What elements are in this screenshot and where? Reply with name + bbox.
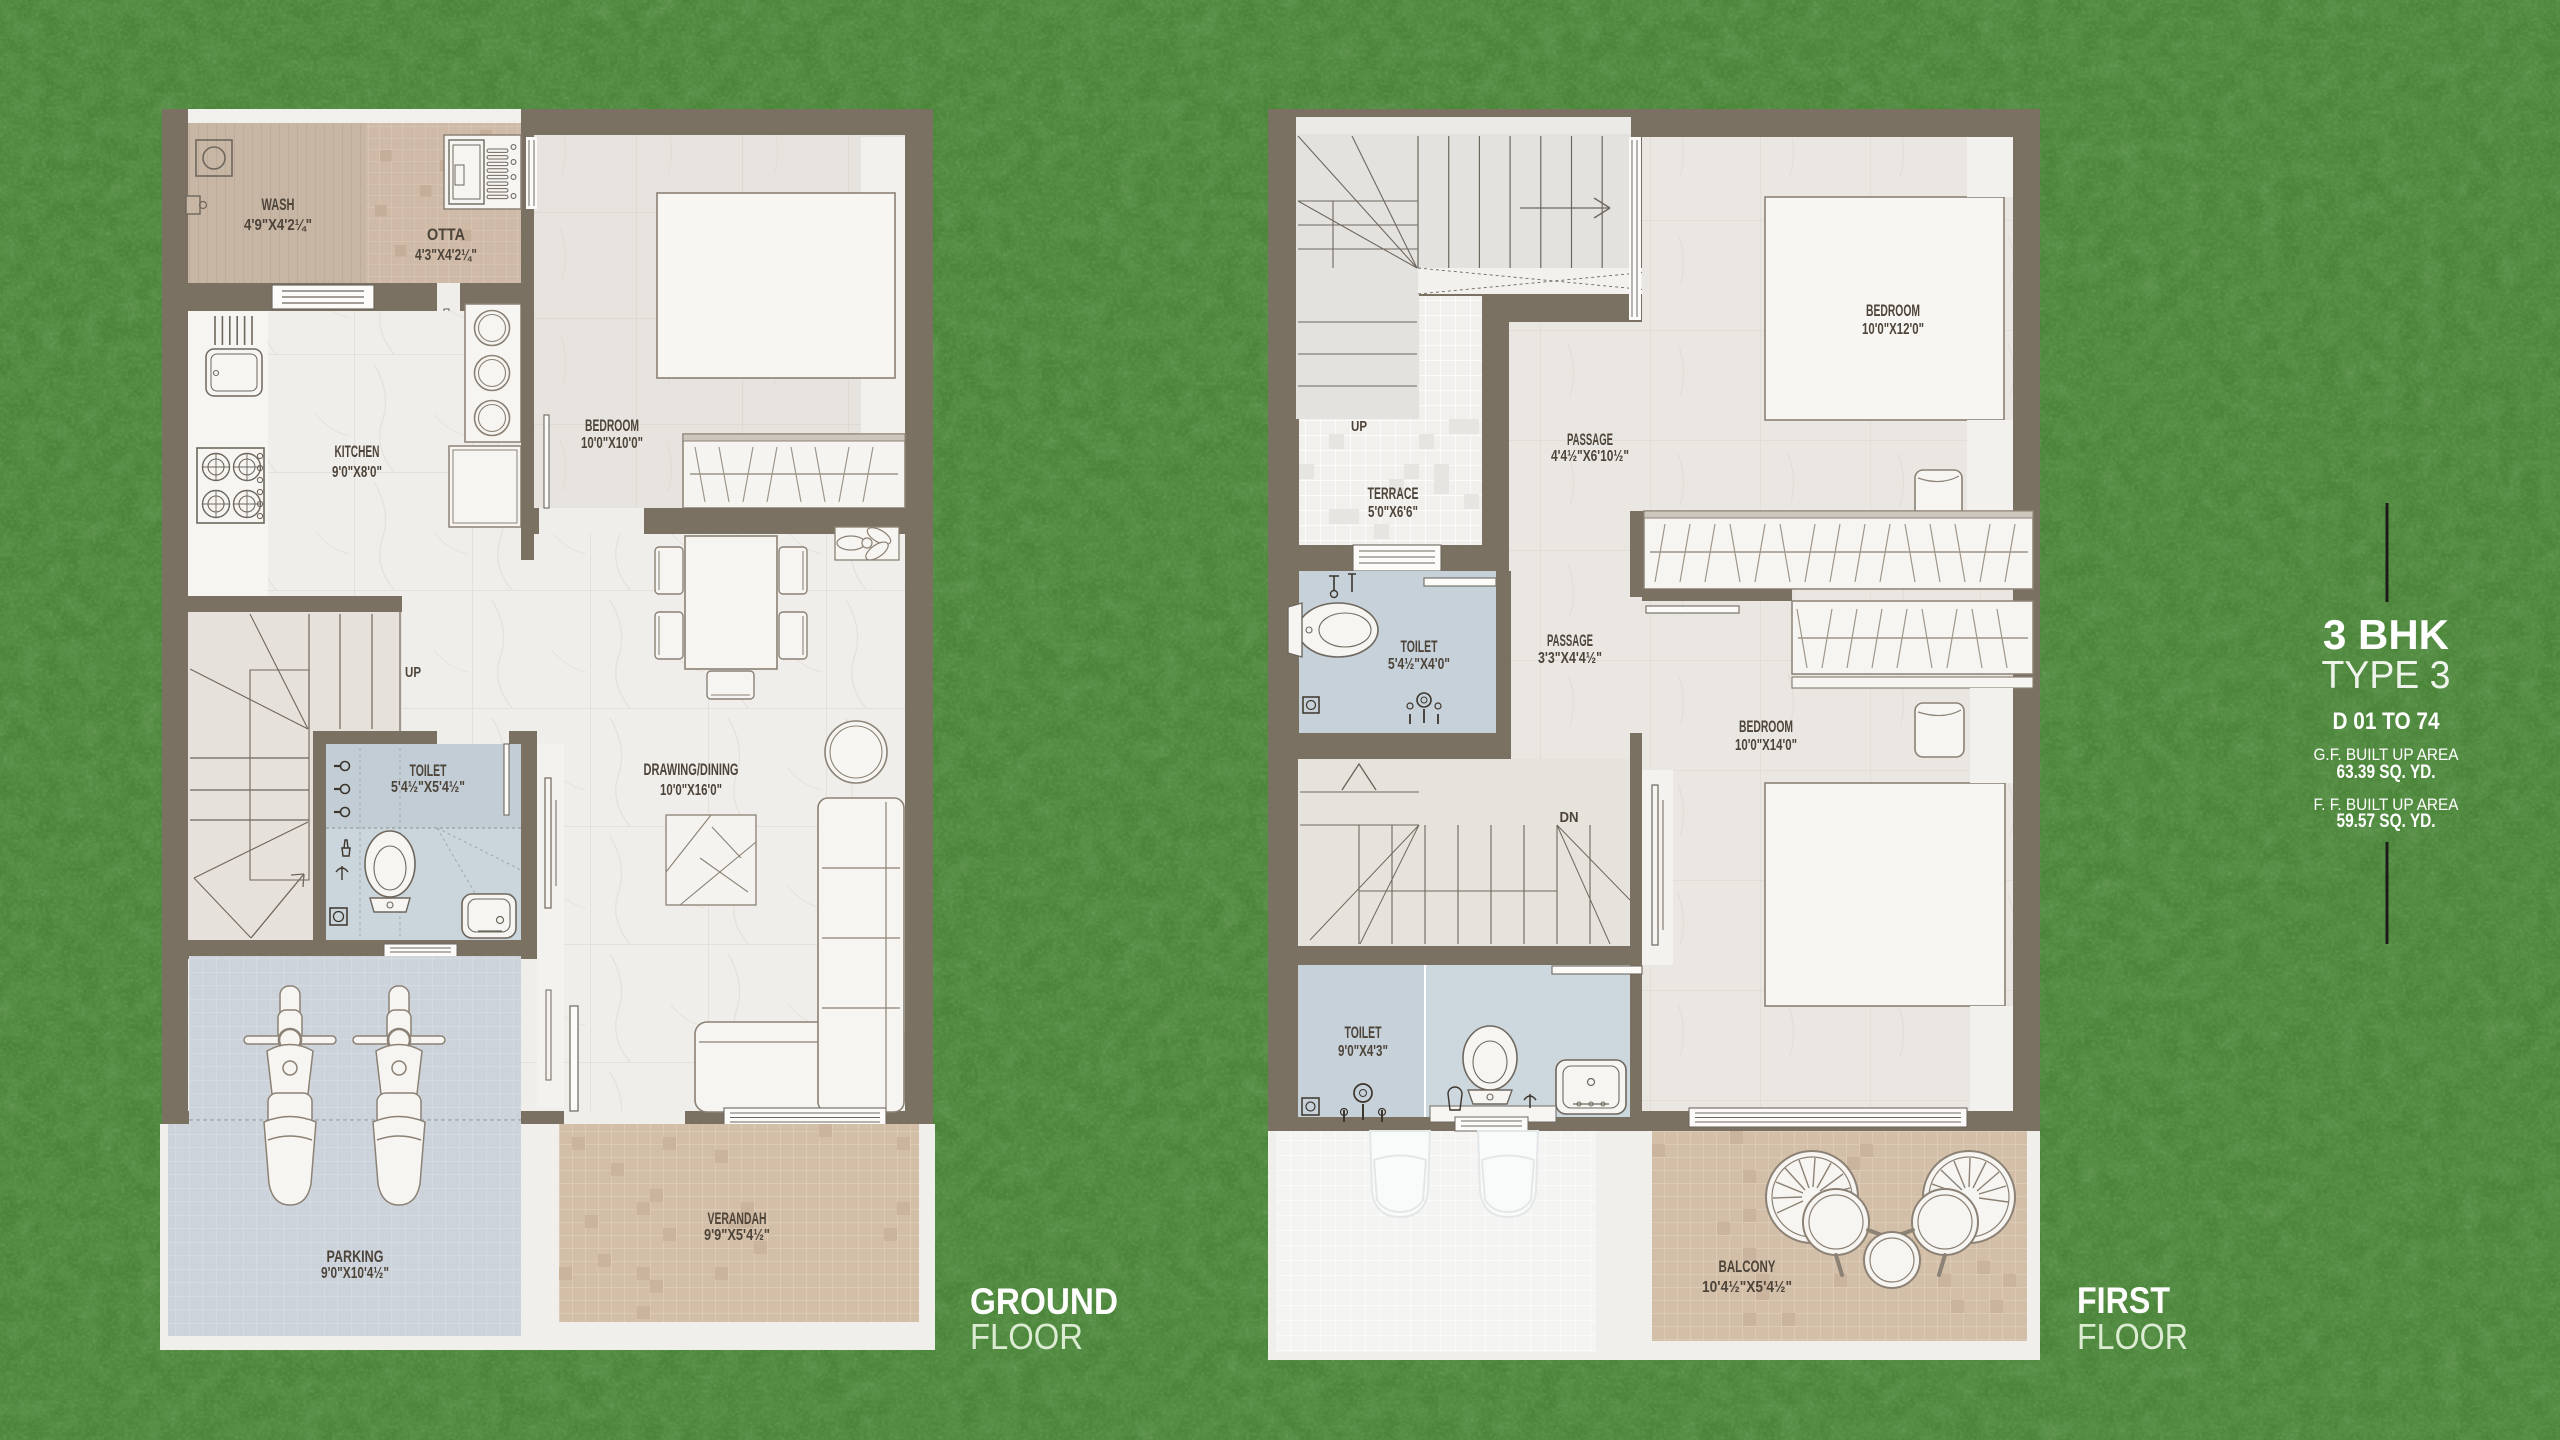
svg-text:FLOOR: FLOOR	[970, 1316, 1083, 1357]
svg-text:TOILET: TOILET	[1401, 638, 1438, 656]
svg-text:TYPE 3: TYPE 3	[2322, 654, 2451, 697]
svg-text:OTTA: OTTA	[427, 226, 465, 244]
svg-text:TOILET: TOILET	[410, 762, 447, 780]
svg-text:DN: DN	[1560, 809, 1579, 826]
svg-text:59.57 SQ. YD.: 59.57 SQ. YD.	[2337, 811, 2436, 832]
svg-text:5'0"X6'6": 5'0"X6'6"	[1368, 504, 1418, 521]
svg-text:BEDROOM: BEDROOM	[585, 417, 639, 435]
svg-text:DRAWING/DINING: DRAWING/DINING	[644, 761, 739, 779]
svg-text:10'0"X10'0": 10'0"X10'0"	[581, 435, 643, 452]
svg-text:10'4½"X5'4½": 10'4½"X5'4½"	[1702, 1279, 1792, 1296]
svg-text:5'4½"X5'4½": 5'4½"X5'4½"	[391, 779, 465, 796]
svg-text:PARKING: PARKING	[327, 1248, 384, 1266]
svg-text:KITCHEN: KITCHEN	[335, 443, 380, 461]
svg-text:9'0"X10'4½": 9'0"X10'4½"	[321, 1265, 389, 1282]
svg-text:UP: UP	[405, 664, 421, 681]
svg-text:4'4½"X6'10½": 4'4½"X6'10½"	[1551, 448, 1629, 465]
svg-text:3'3"X4'4½": 3'3"X4'4½"	[1538, 650, 1602, 667]
svg-text:3 BHK: 3 BHK	[2323, 611, 2449, 658]
svg-text:9'9"X5'4½": 9'9"X5'4½"	[704, 1227, 770, 1244]
svg-text:10'0"X16'0": 10'0"X16'0"	[660, 782, 722, 799]
svg-text:FLOOR: FLOOR	[2077, 1316, 2188, 1357]
svg-text:9'0"X4'3": 9'0"X4'3"	[1338, 1043, 1388, 1060]
svg-text:PASSAGE: PASSAGE	[1567, 431, 1613, 449]
svg-text:4'3"X4'2¼": 4'3"X4'2¼"	[415, 247, 477, 264]
svg-text:BEDROOM: BEDROOM	[1866, 302, 1920, 320]
svg-text:FIRST: FIRST	[2077, 1280, 2170, 1321]
svg-text:9'0"X8'0": 9'0"X8'0"	[332, 464, 382, 481]
svg-text:TERRACE: TERRACE	[1368, 485, 1419, 503]
svg-text:PASSAGE: PASSAGE	[1547, 632, 1593, 650]
svg-text:TOILET: TOILET	[1345, 1024, 1382, 1042]
svg-text:4'9"X4'2¼": 4'9"X4'2¼"	[244, 217, 312, 234]
svg-text:VERANDAH: VERANDAH	[708, 1210, 767, 1228]
svg-text:BALCONY: BALCONY	[1719, 1258, 1776, 1276]
svg-text:WASH: WASH	[262, 196, 295, 214]
svg-text:5'4½"X4'0": 5'4½"X4'0"	[1388, 656, 1450, 673]
svg-text:10'0"X14'0": 10'0"X14'0"	[1735, 737, 1797, 754]
svg-text:BEDROOM: BEDROOM	[1739, 718, 1793, 736]
svg-text:10'0"X12'0": 10'0"X12'0"	[1862, 321, 1924, 338]
svg-text:D 01 TO 74: D 01 TO 74	[2333, 708, 2441, 735]
svg-text:UP: UP	[1351, 418, 1367, 435]
svg-text:63.39 SQ. YD.: 63.39 SQ. YD.	[2337, 762, 2436, 783]
